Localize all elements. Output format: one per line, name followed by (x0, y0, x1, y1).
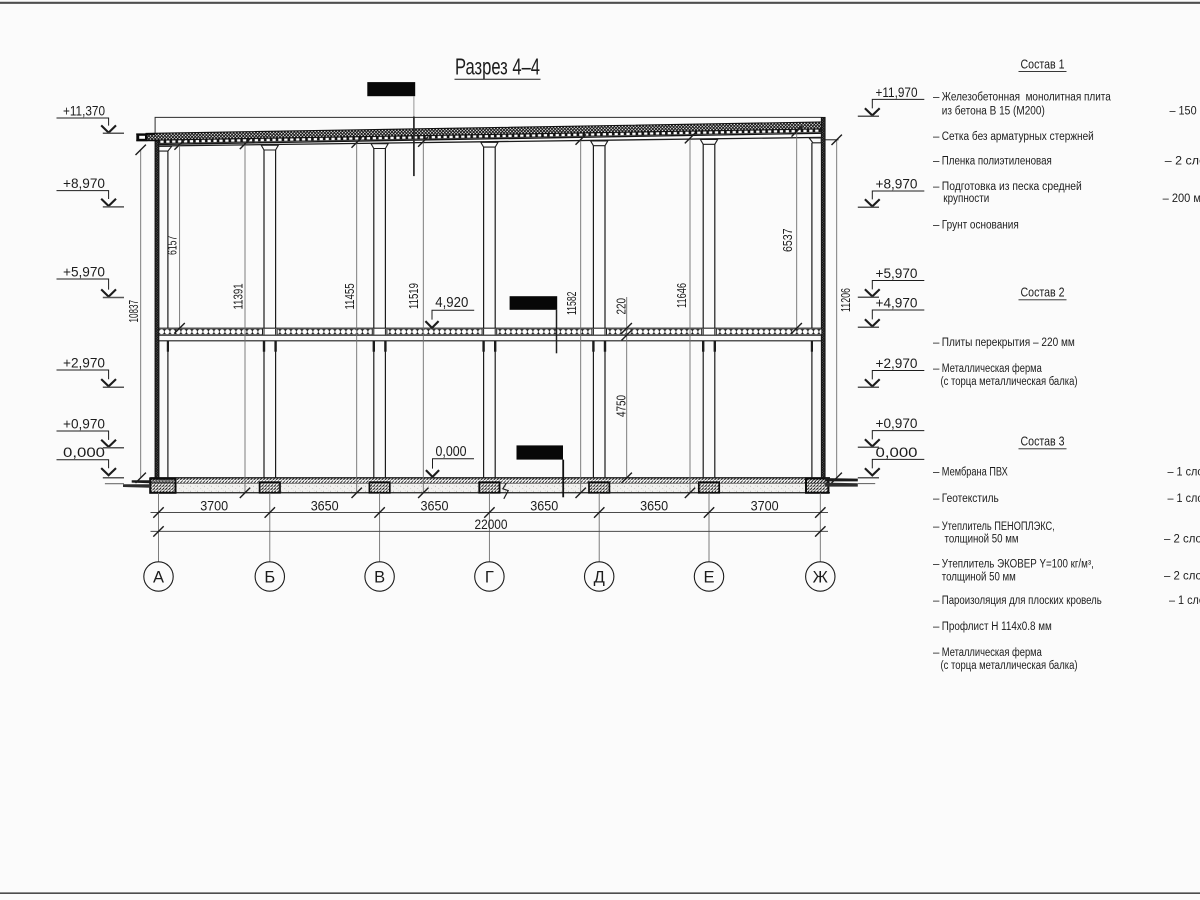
svg-text:–: – (933, 621, 940, 633)
svg-text:11455: 11455 (343, 283, 357, 309)
svg-text:из бетона В 15 (М200): из бетона В 15 (М200) (942, 105, 1045, 117)
svg-text:–: – (933, 337, 940, 349)
svg-text:–: – (933, 91, 940, 103)
svg-text:+4,970: +4,970 (876, 294, 918, 310)
svg-text:Б: Б (264, 568, 275, 586)
svg-text:Сетка без арматурных стержней: Сетка без арматурных стержней (942, 131, 1094, 143)
svg-text:+5,970: +5,970 (876, 265, 918, 281)
svg-text:Состав 2: Состав 2 (1021, 285, 1065, 300)
svg-text:Е: Е (703, 568, 714, 586)
svg-text:–: – (933, 155, 940, 167)
svg-text:–: – (933, 467, 940, 479)
svg-text:–: – (933, 559, 940, 571)
svg-text:(с торца металлическая балка): (с торца металлическая балка) (941, 660, 1078, 672)
svg-text:Подготовка из песка средней: Подготовка из песка средней (942, 181, 1082, 193)
svg-text:А: А (153, 568, 164, 586)
svg-text:Грунт основания: Грунт основания (942, 220, 1019, 232)
svg-text:Профлист Н 114х0.8 мм: Профлист Н 114х0.8 мм (942, 621, 1052, 633)
svg-text:+2,970: +2,970 (876, 355, 918, 371)
svg-text:–: – (933, 363, 940, 375)
svg-text:+11,370: +11,370 (63, 102, 105, 118)
svg-text:–: – (933, 595, 940, 607)
svg-text:– 1 слой: – 1 слой (1168, 493, 1200, 505)
svg-text:Д: Д (594, 568, 605, 586)
svg-text:–: – (933, 493, 940, 505)
svg-text:Состав 3: Состав 3 (1021, 434, 1065, 449)
svg-text:+5,970: +5,970 (63, 263, 105, 279)
svg-text:толщиной 50 мм: толщиной 50 мм (945, 533, 1019, 545)
svg-text:4,920: 4,920 (435, 295, 468, 311)
svg-text:Утеплитель ЭКОВЕР Y=100 кг/м³,: Утеплитель ЭКОВЕР Y=100 кг/м³, (942, 559, 1094, 571)
svg-text:–: – (933, 131, 940, 143)
svg-text:11206: 11206 (839, 288, 853, 312)
svg-text:– 2 слоя: – 2 слоя (1164, 571, 1200, 583)
svg-text:220: 220 (614, 298, 628, 315)
svg-text:Плиты перекрытия – 220 мм: Плиты перекрытия – 220 мм (942, 337, 1075, 349)
svg-text:11646: 11646 (675, 283, 689, 308)
svg-text:6537: 6537 (781, 228, 795, 252)
svg-text:Пленка полиэтиленовая: Пленка полиэтиленовая (942, 155, 1052, 167)
svg-text:Состав 1: Состав 1 (1021, 57, 1065, 72)
svg-text:Пароизоляция для плоских крове: Пароизоляция для плоских кровель (942, 595, 1102, 607)
svg-text:– 150 мм: – 150 мм (1170, 105, 1200, 117)
svg-text:3700: 3700 (751, 498, 779, 514)
svg-text:–: – (933, 181, 940, 193)
svg-text:– 2 слоя: – 2 слоя (1164, 533, 1200, 545)
svg-text:Металлическая ферма: Металлическая ферма (942, 363, 1042, 375)
svg-text:11519: 11519 (407, 283, 421, 309)
svg-text:0,000: 0,000 (876, 444, 918, 460)
svg-text:3650: 3650 (311, 498, 339, 514)
svg-text:– 200 мм: – 200 мм (1163, 193, 1200, 205)
svg-text:0,000: 0,000 (436, 444, 467, 460)
svg-text:толщиной 50 мм: толщиной 50 мм (942, 572, 1016, 584)
svg-text:Металлическая ферма: Металлическая ферма (942, 647, 1042, 659)
svg-text:11391: 11391 (232, 283, 246, 309)
svg-text:3650: 3650 (640, 498, 668, 514)
svg-text:– 1 слой: – 1 слой (1169, 595, 1200, 607)
svg-text:(с торца металлическая балка): (с торца металлическая балка) (941, 376, 1078, 388)
svg-text:–: – (933, 220, 940, 232)
svg-text:крупности: крупности (943, 193, 989, 205)
svg-text:+0,970: +0,970 (63, 415, 105, 431)
svg-text:+8,970: +8,970 (876, 175, 918, 191)
svg-text:+11,970: +11,970 (876, 84, 918, 100)
svg-text:– 2 слоя: – 2 слоя (1165, 155, 1200, 167)
svg-text:Утеплитель ПЕНОПЛЭКС,: Утеплитель ПЕНОПЛЭКС, (942, 521, 1055, 533)
svg-text:+2,970: +2,970 (63, 354, 105, 370)
svg-text:+0,970: +0,970 (876, 415, 918, 431)
svg-text:22000: 22000 (475, 516, 508, 532)
svg-text:3650: 3650 (421, 498, 449, 514)
svg-text:Г: Г (485, 568, 494, 586)
svg-text:Железобетонная монолитная пли: Железобетонная монолитная плита (942, 91, 1112, 103)
svg-text:–: – (933, 521, 940, 533)
svg-text:0,000: 0,000 (63, 444, 105, 460)
svg-text:11582: 11582 (565, 291, 579, 315)
svg-text:10837: 10837 (127, 300, 141, 323)
svg-text:–: – (933, 647, 940, 659)
svg-text:Ж: Ж (813, 568, 829, 586)
svg-text:Геотекстиль: Геотекстиль (942, 493, 999, 505)
svg-text:+8,970: +8,970 (63, 175, 105, 191)
svg-text:– 1 слой: – 1 слой (1168, 467, 1200, 479)
svg-text:Разрез 4–4: Разрез 4–4 (455, 54, 540, 80)
svg-text:3700: 3700 (200, 498, 228, 514)
svg-text:4750: 4750 (614, 395, 628, 417)
svg-text:3650: 3650 (530, 498, 558, 514)
svg-text:В: В (374, 568, 385, 586)
svg-text:6157: 6157 (165, 236, 179, 255)
svg-text:Мембрана ПВХ: Мембрана ПВХ (942, 467, 1008, 479)
